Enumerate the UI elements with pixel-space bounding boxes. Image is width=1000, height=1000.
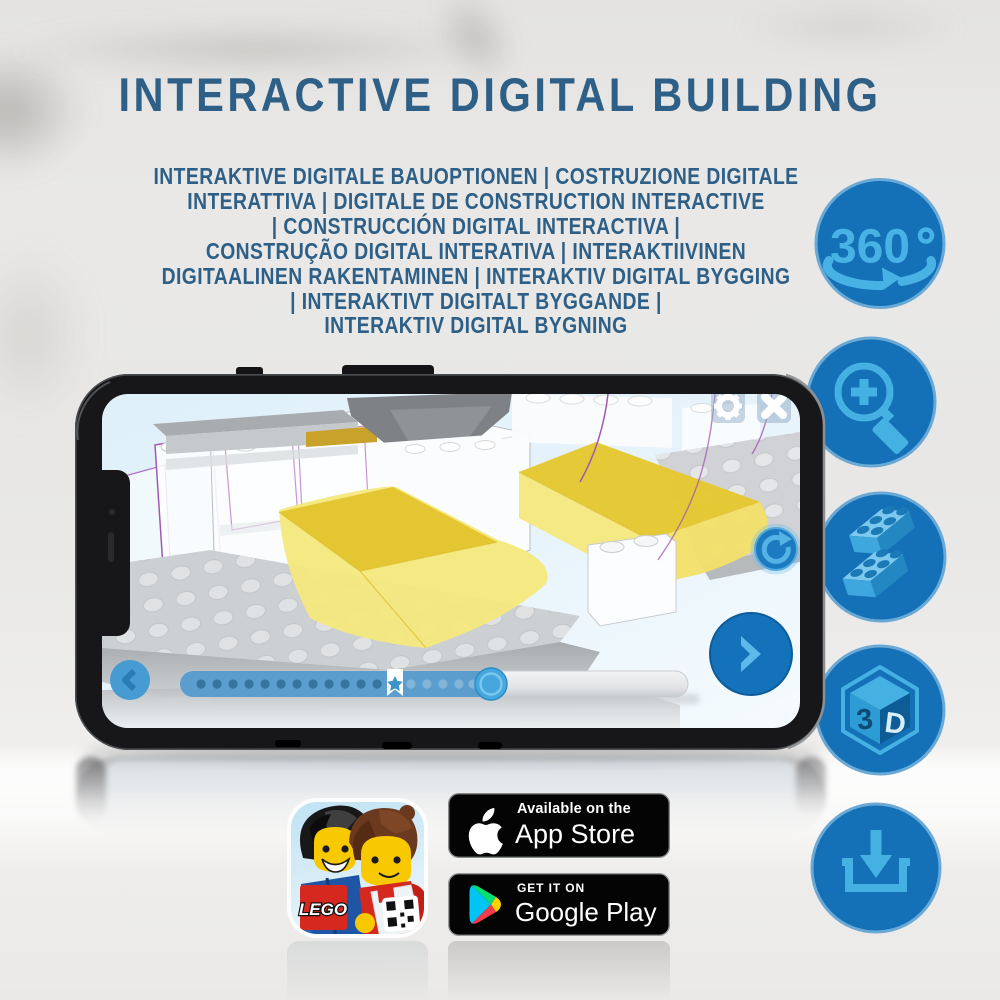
svg-text:App Store: App Store bbox=[515, 819, 635, 849]
svg-text:D: D bbox=[883, 707, 908, 741]
svg-text:GET IT ON: GET IT ON bbox=[517, 881, 585, 895]
svg-text:LEGO: LEGO bbox=[299, 900, 347, 919]
svg-text:Available on the: Available on the bbox=[517, 801, 631, 817]
svg-text:Google Play: Google Play bbox=[515, 897, 657, 927]
svg-text:360: 360 bbox=[830, 221, 910, 274]
